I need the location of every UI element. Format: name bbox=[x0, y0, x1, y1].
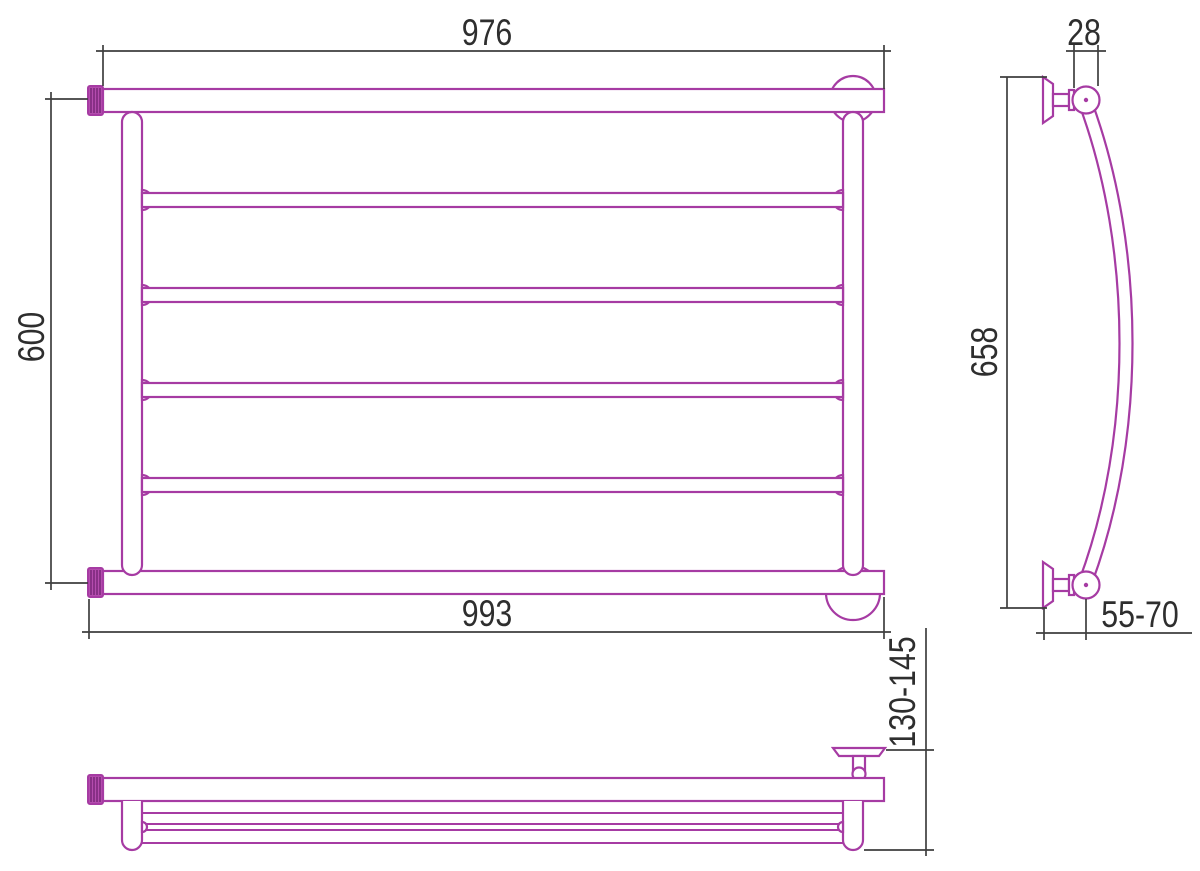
dimension-658: 658 bbox=[964, 77, 1047, 608]
threaded-fitting-top bbox=[88, 86, 103, 115]
side-view bbox=[1043, 77, 1133, 608]
rung bbox=[142, 288, 843, 302]
rung-end-caps bbox=[142, 190, 843, 495]
dimension-28: 28 bbox=[1066, 12, 1106, 88]
wall-plate bbox=[1043, 562, 1053, 608]
dimension-55-70: 55-70 bbox=[1036, 594, 1192, 640]
wall-plate bbox=[1043, 77, 1053, 123]
technical-drawing-page: 976 600 993 28 658 55-70 130-145 bbox=[0, 0, 1200, 871]
shelf-bar bbox=[103, 778, 884, 801]
side-tube-plan-left bbox=[122, 801, 142, 850]
plan-rung-lines bbox=[142, 813, 843, 843]
rung bbox=[142, 193, 843, 207]
pivot-center-dot bbox=[1084, 98, 1088, 102]
pivot-center-dot bbox=[1084, 583, 1088, 587]
dim-label-55-70: 55-70 bbox=[1101, 594, 1179, 636]
rung-cap-plan bbox=[142, 822, 147, 832]
rung bbox=[142, 383, 843, 397]
left-post bbox=[122, 112, 142, 575]
side-wall-bracket-top bbox=[1043, 77, 1100, 123]
dim-label-28: 28 bbox=[1067, 12, 1101, 54]
side-wall-bracket-bottom bbox=[1043, 562, 1100, 608]
dimension-993: 993 bbox=[82, 593, 891, 639]
wall-plate bbox=[833, 748, 885, 756]
towel-rail-technical-drawing: 976 600 993 28 658 55-70 130-145 bbox=[0, 0, 1200, 871]
rung-cap-plan bbox=[838, 822, 843, 832]
bottom-bar bbox=[103, 571, 884, 594]
curved-tube bbox=[1079, 102, 1133, 583]
top-bar bbox=[103, 89, 884, 112]
dimension-976: 976 bbox=[96, 12, 891, 89]
rung bbox=[142, 478, 843, 492]
dim-label-130-145: 130-145 bbox=[882, 636, 924, 747]
dim-label-658: 658 bbox=[964, 327, 1006, 378]
plan-view bbox=[88, 748, 885, 850]
bracket-stem bbox=[1053, 579, 1069, 591]
dimension-600: 600 bbox=[11, 92, 88, 590]
bracket-stem bbox=[1053, 94, 1069, 106]
plan-wall-bracket bbox=[833, 748, 885, 781]
dim-label-976: 976 bbox=[462, 12, 513, 54]
right-post bbox=[843, 112, 863, 575]
dim-label-600: 600 bbox=[11, 312, 53, 363]
threaded-fitting-plan bbox=[88, 775, 103, 804]
dim-label-993: 993 bbox=[462, 593, 513, 635]
dimensions: 976 600 993 28 658 55-70 130-145 bbox=[11, 12, 1192, 856]
dimension-130-145: 130-145 bbox=[864, 628, 934, 856]
side-tube-plan-right bbox=[843, 801, 863, 850]
threaded-fitting-bottom bbox=[88, 568, 103, 597]
front-view bbox=[88, 76, 884, 620]
